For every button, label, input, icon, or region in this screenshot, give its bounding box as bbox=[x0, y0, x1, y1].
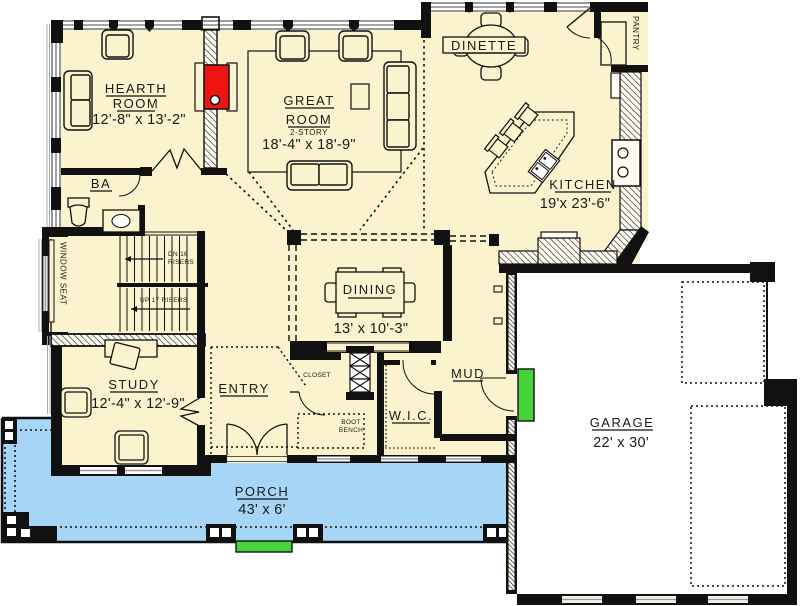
svg-text:18'-4" x 18'-9": 18'-4" x 18'-9" bbox=[262, 137, 356, 153]
svg-text:WINDOW SEAT: WINDOW SEAT bbox=[59, 242, 68, 305]
svg-text:43' x 6': 43' x 6' bbox=[238, 502, 285, 518]
svg-text:BA: BA bbox=[91, 176, 111, 191]
svg-text:DINING: DINING bbox=[343, 282, 398, 297]
svg-text:DINETTE: DINETTE bbox=[451, 38, 517, 53]
svg-text:MUD: MUD bbox=[451, 366, 485, 381]
svg-text:CLOSET: CLOSET bbox=[303, 372, 331, 379]
svg-text:PANTRY: PANTRY bbox=[631, 16, 640, 51]
svg-text:PORCH: PORCH bbox=[235, 484, 289, 499]
svg-text:RISERS: RISERS bbox=[168, 259, 194, 266]
svg-text:W.I.C.: W.I.C. bbox=[389, 408, 433, 423]
svg-text:13' x 10'-3": 13' x 10'-3" bbox=[334, 321, 409, 337]
svg-text:HEARTH: HEARTH bbox=[105, 81, 167, 96]
svg-text:ROOM: ROOM bbox=[113, 96, 159, 111]
svg-text:KITCHEN: KITCHEN bbox=[549, 177, 617, 192]
svg-text:19'x 23'-6": 19'x 23'-6" bbox=[540, 196, 610, 212]
svg-text:BENCH: BENCH bbox=[339, 427, 363, 434]
svg-text:22' x 30': 22' x 30' bbox=[593, 435, 649, 451]
svg-text:STUDY: STUDY bbox=[108, 377, 160, 392]
svg-text:BOOT: BOOT bbox=[341, 419, 361, 426]
svg-text:ROOM: ROOM bbox=[286, 112, 332, 127]
svg-text:2-STORY: 2-STORY bbox=[290, 128, 328, 137]
svg-text:GREAT: GREAT bbox=[283, 93, 334, 108]
svg-text:GARAGE: GARAGE bbox=[590, 415, 655, 430]
svg-text:12'-4" x 12'-9": 12'-4" x 12'-9" bbox=[91, 396, 185, 412]
svg-text:12'-8" x 13'-2": 12'-8" x 13'-2" bbox=[92, 112, 186, 128]
svg-text:DN 16: DN 16 bbox=[168, 251, 188, 258]
svg-text:UP 17 RISERS: UP 17 RISERS bbox=[140, 297, 188, 304]
svg-text:ENTRY: ENTRY bbox=[218, 381, 269, 396]
